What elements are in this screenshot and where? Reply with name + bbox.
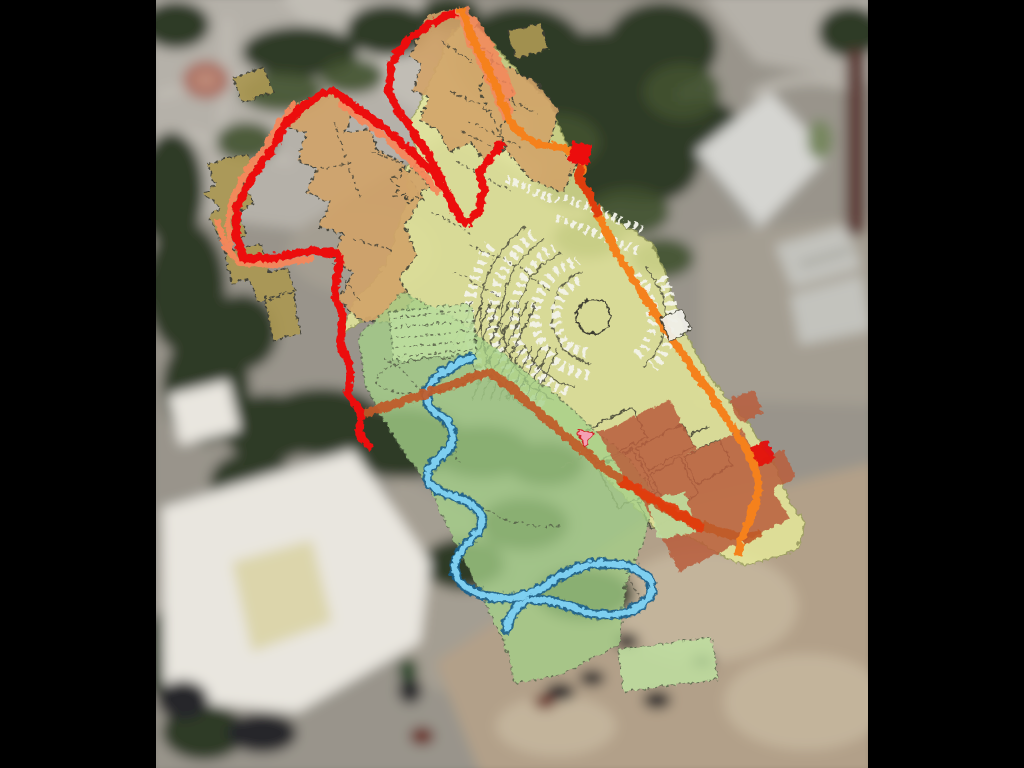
satellite-flowerbed-center <box>193 70 219 90</box>
route-red-node <box>567 140 590 164</box>
satellite-car-green <box>398 658 418 682</box>
site-plan-map <box>0 0 1024 768</box>
satellite-maroon-strip <box>846 50 866 235</box>
screenshot-root <box>0 0 1024 768</box>
satellite-parked-vehicle <box>807 120 833 160</box>
